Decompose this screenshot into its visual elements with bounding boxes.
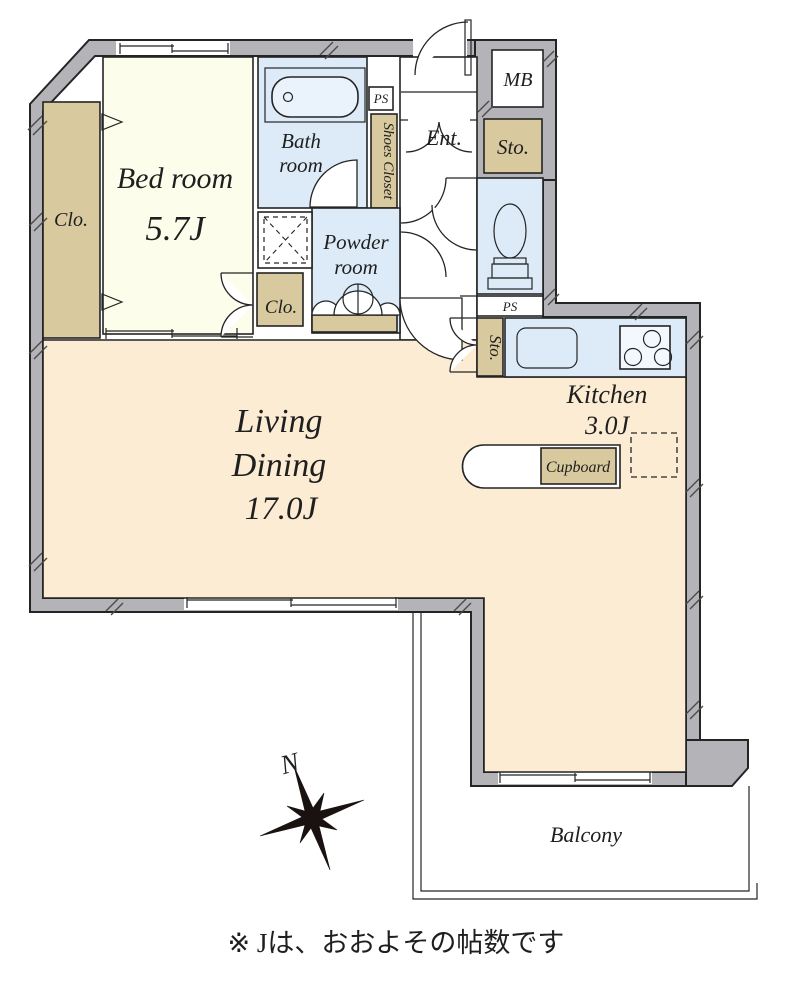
balcony-label: Balcony	[550, 822, 622, 847]
pipe-space-top-label: PS	[373, 91, 389, 106]
cupboard-label: Cupboard	[546, 459, 611, 476]
pipe-space-mid-label: PS	[502, 299, 518, 314]
living-label-1: Living	[235, 403, 323, 440]
powder-label-1: Powder	[322, 230, 389, 254]
bedroom-area-label: 5.7J	[145, 209, 206, 248]
bedroom-window-opening	[116, 41, 230, 55]
hall-closet-label: Clo.	[265, 297, 297, 318]
meter-box-label: MB	[503, 69, 533, 91]
floor-plan-drawing: Bed room 5.7J Clo. Bath room PS Shoes Cl…	[0, 0, 792, 984]
room-toilet	[477, 178, 543, 294]
vanity-counter	[312, 315, 397, 332]
powder-label-2: room	[334, 255, 378, 279]
kitchen-area-label: 3.0J	[584, 411, 631, 440]
bathtub	[272, 77, 358, 117]
footnote: ※ Jは、おおよその帖数です	[228, 928, 565, 958]
entrance-label: Ent.	[425, 125, 462, 150]
corner-wall-block	[686, 740, 748, 786]
living-area-label: 17.0J	[245, 491, 319, 527]
living-label-2: Dining	[231, 447, 326, 484]
kitchen-storage-label: Sto.	[486, 335, 505, 361]
bedroom-closet-label: Clo.	[54, 209, 88, 231]
bedroom-label: Bed room	[117, 162, 233, 195]
bathroom-label-1: Bath	[281, 129, 321, 153]
kitchen-label: Kitchen	[566, 380, 648, 409]
floor-plan-page: Bed room 5.7J Clo. Bath room PS Shoes Cl…	[0, 0, 792, 984]
stove	[620, 326, 670, 369]
shoes-closet-label: Shoes Closet	[380, 122, 396, 200]
entrance-storage-label: Sto.	[497, 135, 529, 159]
bathroom-label-2: room	[279, 153, 323, 177]
